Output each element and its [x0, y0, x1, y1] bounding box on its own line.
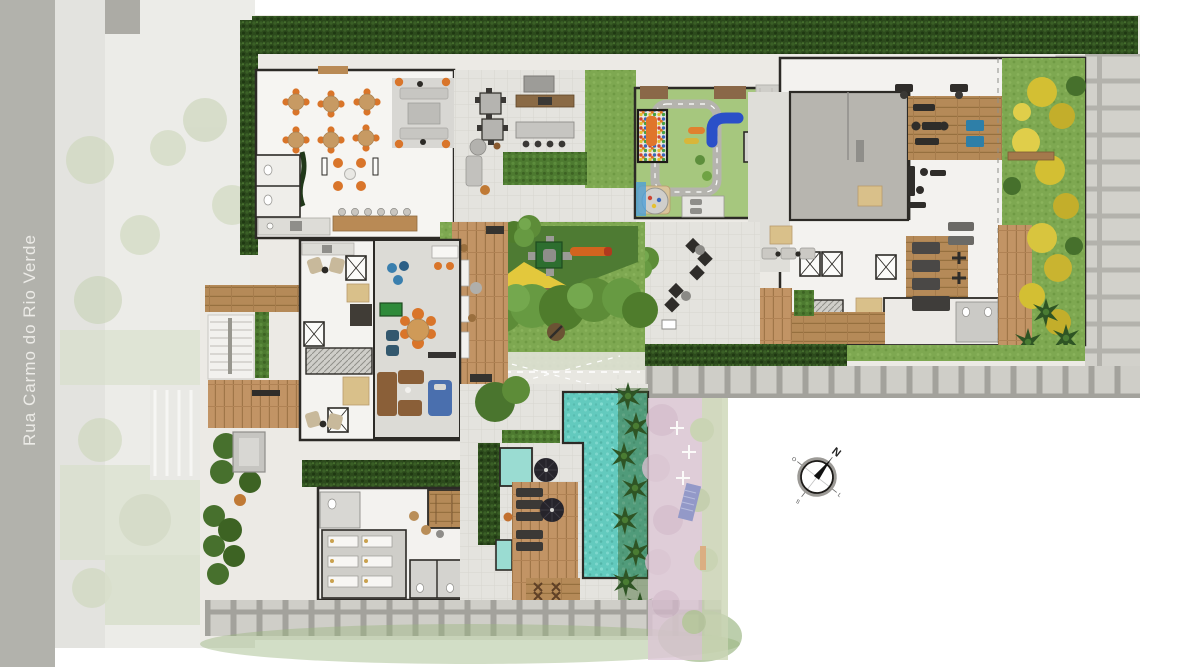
game-table	[380, 303, 402, 316]
entry-stairs	[208, 315, 254, 379]
shower-rooms	[410, 560, 464, 598]
entry-deck	[208, 380, 304, 428]
stroller-parking	[682, 196, 724, 217]
compass-south-label: S	[794, 499, 801, 506]
spa-wc	[320, 492, 360, 528]
garden-bench	[1008, 152, 1054, 160]
neighbor-lot-ghost	[642, 398, 728, 660]
compass-rose: N O S L	[771, 429, 864, 524]
compass-west-label: O	[790, 456, 798, 464]
doormat	[770, 226, 792, 244]
floor-plan-drawing: N O S L	[0, 0, 1200, 667]
service-core	[790, 92, 908, 220]
pool-hedge	[478, 443, 500, 545]
games-lounge	[374, 240, 460, 438]
ball-pit-slide	[646, 116, 657, 146]
compass-east-label: L	[836, 492, 842, 499]
top-boundary-hedge	[252, 16, 1138, 54]
kitchen	[258, 218, 330, 235]
pergola-lounge	[526, 578, 580, 600]
lobby-sofas	[762, 248, 815, 259]
lounge-corner	[392, 78, 454, 148]
amenities-tower	[300, 240, 460, 440]
south-boundary-right	[645, 342, 1140, 398]
bench	[662, 320, 676, 329]
ball-pit	[638, 110, 667, 162]
paver-fence	[645, 366, 1140, 398]
plunge-pool	[496, 540, 512, 570]
terrace-lawn	[585, 70, 636, 188]
party-room	[256, 66, 454, 238]
yellow-garden	[998, 58, 1086, 358]
compass-north-label: N	[829, 445, 843, 459]
restrooms	[256, 155, 300, 217]
relax-room	[322, 530, 406, 598]
playhouse-roof	[640, 86, 668, 99]
gourmet-terrace	[454, 70, 636, 245]
site-plan-canvas: Rua Carmo do Rio Verde	[0, 0, 1200, 667]
kids-pool	[500, 448, 532, 486]
changing-rooms	[884, 296, 1002, 345]
terrace-hedge	[503, 152, 587, 185]
toddler-corner	[636, 182, 670, 216]
tower-stairs	[306, 348, 372, 374]
